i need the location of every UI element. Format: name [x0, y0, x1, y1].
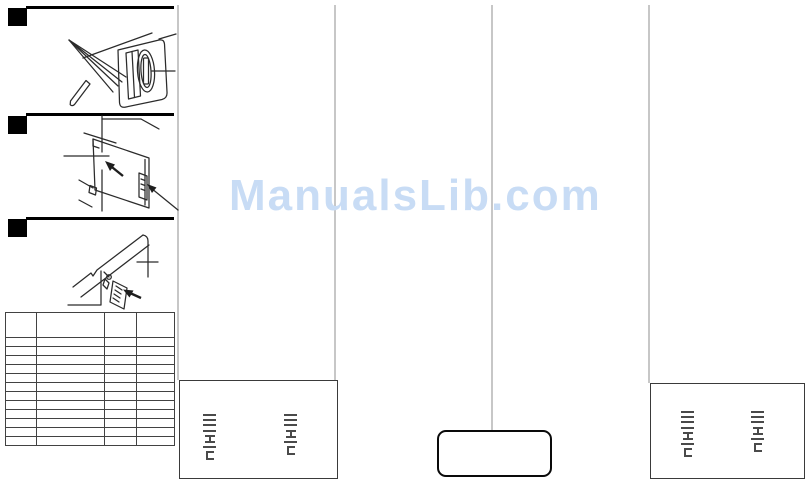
table-cell — [6, 410, 37, 419]
micro-mark-ibeam — [683, 432, 693, 440]
table-row — [6, 338, 175, 347]
table-cell — [105, 347, 137, 356]
card-insertion-illustration — [60, 112, 182, 214]
table-cell — [137, 410, 175, 419]
table-row — [6, 428, 175, 437]
step3-diagram — [60, 224, 182, 312]
micro-mark-dash — [751, 438, 764, 440]
table-cell — [37, 383, 105, 392]
table-cell — [105, 410, 137, 419]
micro-mark-dash — [681, 421, 694, 423]
micro-mark-dash — [681, 443, 694, 445]
table-cell — [37, 410, 105, 419]
micro-mark-cbr — [754, 443, 762, 452]
table-cell — [37, 347, 105, 356]
micro-mark-ibeam — [286, 430, 296, 438]
step1-diagram — [55, 27, 177, 113]
micro-mark-dash — [284, 424, 297, 426]
micro-mark-dash — [284, 419, 297, 421]
micro-mark-dash — [203, 430, 216, 432]
step3-rule — [26, 217, 174, 220]
table-row — [6, 437, 175, 446]
table-cell — [37, 313, 105, 338]
micro-mark-dash — [681, 411, 694, 413]
table-cell — [37, 419, 105, 428]
table-row — [6, 365, 175, 374]
table-row — [6, 401, 175, 410]
table-row — [6, 374, 175, 383]
table-cell — [137, 419, 175, 428]
table-cell — [37, 365, 105, 374]
table-cell — [37, 392, 105, 401]
table-cell — [105, 374, 137, 383]
page-separator-line-4 — [648, 5, 650, 383]
table-cell — [137, 392, 175, 401]
table-cell — [105, 365, 137, 374]
table-cell — [6, 437, 37, 446]
table-cell — [6, 374, 37, 383]
micro-mark-cbr — [684, 448, 692, 457]
table-row — [6, 347, 175, 356]
step2-number-square — [8, 116, 27, 134]
table-cell — [105, 313, 137, 338]
table-cell — [137, 356, 175, 365]
table-cell — [105, 401, 137, 410]
table-row — [6, 419, 175, 428]
table-cell — [37, 356, 105, 365]
micro-mark-dash — [203, 446, 216, 448]
micro-mark-cbr — [206, 451, 214, 460]
micro-mark-ibeam — [205, 435, 215, 443]
table-row — [6, 383, 175, 392]
table-cell — [105, 338, 137, 347]
micro-mark-ibeam — [753, 427, 763, 435]
table-cell — [137, 428, 175, 437]
table-cell — [105, 356, 137, 365]
micro-mark-cbr — [287, 446, 295, 455]
bottom-center-rounded-box — [437, 430, 552, 477]
table-cell — [37, 338, 105, 347]
table-cell — [6, 428, 37, 437]
spec-table — [5, 312, 175, 446]
table-cell — [105, 383, 137, 392]
table-cell — [37, 401, 105, 410]
spec-table-body — [6, 313, 175, 446]
table-row — [6, 356, 175, 365]
table-cell — [37, 374, 105, 383]
table-cell — [6, 383, 37, 392]
micro-mark-dash — [681, 416, 694, 418]
table-cell — [6, 356, 37, 365]
step1-number-square — [8, 8, 27, 26]
micro-text-stack — [751, 411, 764, 452]
table-cell — [137, 437, 175, 446]
stylus-connector-illustration — [55, 27, 177, 113]
table-cell — [105, 392, 137, 401]
table-cell — [105, 437, 137, 446]
micro-mark-dash — [284, 414, 297, 416]
micro-mark-dash — [681, 427, 694, 429]
scanned-manual-page: ManualsLib.com — [0, 0, 808, 485]
micro-text-stack — [284, 414, 297, 455]
table-cell — [137, 401, 175, 410]
table-row — [6, 392, 175, 401]
table-cell — [6, 392, 37, 401]
table-cell — [137, 338, 175, 347]
table-cell — [137, 347, 175, 356]
micro-mark-dash — [203, 419, 216, 421]
table-cell — [6, 419, 37, 428]
table-cell — [137, 365, 175, 374]
micro-text-stack — [203, 414, 216, 460]
table-cell — [137, 313, 175, 338]
table-cell — [6, 365, 37, 374]
micro-mark-dash — [284, 441, 297, 443]
table-cell — [6, 401, 37, 410]
table-cell — [37, 437, 105, 446]
bottom-right-preview-box — [650, 383, 805, 479]
step3-number-square — [8, 219, 27, 237]
table-cell — [6, 347, 37, 356]
micro-mark-dash — [751, 421, 764, 423]
table-cell — [105, 428, 137, 437]
manualslib-watermark: ManualsLib.com — [229, 171, 602, 221]
table-cell — [137, 383, 175, 392]
micro-mark-dash — [751, 416, 764, 418]
table-row — [6, 313, 175, 338]
table-cell — [6, 313, 37, 338]
table-cell — [105, 419, 137, 428]
table-cell — [6, 338, 37, 347]
rail-plate-illustration — [60, 224, 182, 312]
step2-diagram — [60, 112, 182, 214]
table-cell — [37, 428, 105, 437]
micro-mark-dash — [751, 411, 764, 413]
table-cell — [137, 374, 175, 383]
micro-text-stack — [681, 411, 694, 457]
micro-mark-dash — [203, 414, 216, 416]
step1-rule — [26, 6, 174, 9]
table-row — [6, 410, 175, 419]
micro-mark-dash — [203, 424, 216, 426]
